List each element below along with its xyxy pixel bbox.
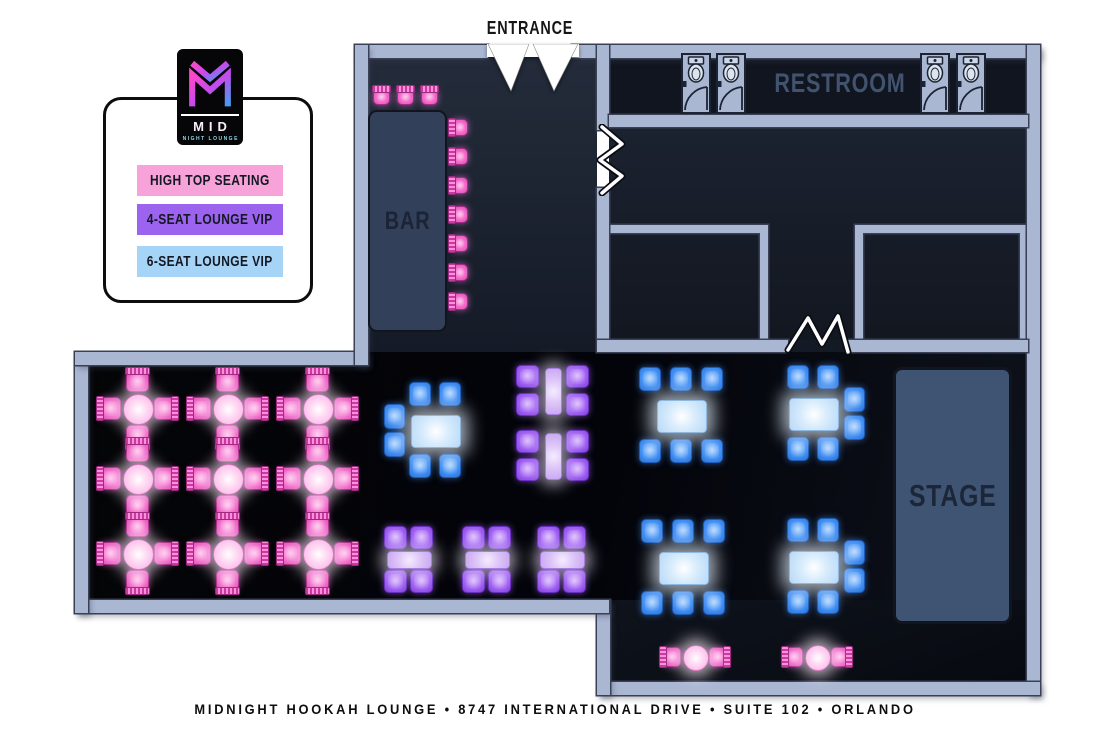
chair xyxy=(100,467,121,490)
entrance-label: ENTRANCE xyxy=(430,18,630,39)
toilet-stall xyxy=(956,53,986,114)
table-top xyxy=(657,400,707,433)
chair xyxy=(488,526,511,549)
bar-label: BAR xyxy=(385,207,431,236)
chair xyxy=(244,397,265,420)
chair xyxy=(409,382,431,406)
legend-item-6-seat-vip: 6-SEAT LOUNGE VIP xyxy=(137,246,283,277)
chair xyxy=(410,526,433,549)
chair xyxy=(306,441,329,462)
chair xyxy=(709,647,727,667)
chair xyxy=(817,590,839,614)
chair xyxy=(154,397,175,420)
wall xyxy=(75,352,88,613)
table-top xyxy=(465,551,510,569)
chair xyxy=(306,371,329,392)
wall xyxy=(609,115,1028,127)
table-top xyxy=(387,551,432,569)
table-top xyxy=(213,464,244,495)
chair xyxy=(154,542,175,565)
chair xyxy=(844,415,865,440)
chair xyxy=(384,432,405,457)
chair xyxy=(306,516,329,537)
back-room-right xyxy=(855,225,1028,348)
chair xyxy=(100,542,121,565)
wall xyxy=(75,352,367,365)
chair xyxy=(537,526,560,549)
table-top xyxy=(123,464,154,495)
chair xyxy=(334,397,355,420)
toilet-icon xyxy=(922,55,948,112)
floor-plan: RESTROOM BAR STAGE ENTRANCE xyxy=(0,0,1110,740)
door-swing-icon xyxy=(782,310,854,354)
chair xyxy=(462,570,485,593)
chair xyxy=(566,458,589,481)
chair xyxy=(787,437,809,461)
chair xyxy=(844,568,865,593)
table-top xyxy=(545,368,562,415)
venue-address: MIDNIGHT HOOKAH LOUNGE • 8747 INTERNATIO… xyxy=(0,701,1110,717)
table-top xyxy=(123,394,154,425)
table-top xyxy=(213,394,244,425)
toilet-icon xyxy=(683,55,709,112)
table-top xyxy=(303,394,334,425)
chair xyxy=(566,393,589,416)
chair xyxy=(844,387,865,412)
chair xyxy=(244,542,265,565)
chair xyxy=(439,382,461,406)
chair xyxy=(566,365,589,388)
chair xyxy=(280,397,301,420)
chair xyxy=(787,590,809,614)
chair xyxy=(409,454,431,478)
door-swing-icon xyxy=(592,124,628,196)
bar-stool xyxy=(452,148,468,165)
chair xyxy=(817,518,839,542)
chair xyxy=(126,441,149,462)
wall xyxy=(848,340,1028,352)
chair xyxy=(563,526,586,549)
table-top xyxy=(545,433,562,480)
bar-area: BAR xyxy=(368,110,447,332)
logo-mid-text: MID xyxy=(188,119,232,134)
toilet-icon xyxy=(718,55,744,112)
wall xyxy=(597,340,788,352)
chair xyxy=(639,367,661,391)
wall xyxy=(355,45,488,58)
table-top xyxy=(805,645,831,671)
chair xyxy=(701,367,723,391)
table-top xyxy=(303,464,334,495)
back-room-left xyxy=(600,225,768,348)
bar-stool xyxy=(373,89,390,105)
chair xyxy=(216,516,239,537)
chair xyxy=(703,591,725,615)
chair xyxy=(563,570,586,593)
chair xyxy=(641,519,663,543)
chair xyxy=(244,467,265,490)
chair xyxy=(334,542,355,565)
chair xyxy=(663,647,681,667)
toilet-icon xyxy=(958,55,984,112)
chair xyxy=(216,570,239,591)
entrance-door-icon xyxy=(487,44,579,96)
wall xyxy=(1027,45,1040,695)
wall xyxy=(355,45,368,365)
bar-stool xyxy=(397,89,414,105)
wall xyxy=(597,682,1040,695)
table-top xyxy=(123,539,154,570)
logo-m-icon xyxy=(180,52,240,112)
chair xyxy=(670,439,692,463)
chair xyxy=(672,519,694,543)
restroom-label: RESTROOM xyxy=(758,68,910,99)
chair xyxy=(787,518,809,542)
bar-stool xyxy=(452,235,468,252)
wall xyxy=(75,600,609,613)
chair xyxy=(216,371,239,392)
chair xyxy=(672,591,694,615)
chair xyxy=(190,467,211,490)
chair xyxy=(537,570,560,593)
table-top xyxy=(540,551,585,569)
chair xyxy=(126,371,149,392)
table-top xyxy=(789,398,839,431)
chair xyxy=(384,526,407,549)
bar-stool xyxy=(452,177,468,194)
chair xyxy=(641,591,663,615)
bar-stool xyxy=(452,206,468,223)
chair xyxy=(566,430,589,453)
chair xyxy=(831,647,849,667)
chair xyxy=(190,397,211,420)
chair xyxy=(639,439,661,463)
chair xyxy=(516,365,539,388)
legend-item-high-top: HIGH TOP SEATING xyxy=(137,165,283,196)
table-top xyxy=(659,552,709,585)
toilet-stall xyxy=(920,53,950,114)
chair xyxy=(488,570,511,593)
table-top xyxy=(789,551,839,584)
chair xyxy=(410,570,433,593)
chair xyxy=(216,441,239,462)
chair xyxy=(334,467,355,490)
chair xyxy=(817,437,839,461)
chair xyxy=(844,540,865,565)
logo-sub-text: NIGHT LOUNGE xyxy=(181,136,239,142)
logo-divider xyxy=(181,114,239,116)
bar-stool xyxy=(421,89,438,105)
chair xyxy=(100,397,121,420)
chair xyxy=(190,542,211,565)
midnight-logo: MID NIGHT LOUNGE xyxy=(177,49,243,145)
wall xyxy=(597,600,610,695)
table-top xyxy=(303,539,334,570)
stage-label: STAGE xyxy=(909,478,997,514)
toilet-stall xyxy=(716,53,746,114)
chair xyxy=(280,467,301,490)
wall xyxy=(597,45,609,130)
chair xyxy=(787,365,809,389)
toilet-stall xyxy=(681,53,711,114)
bar-stool xyxy=(452,293,468,310)
bar-stool xyxy=(452,119,468,136)
chair xyxy=(516,393,539,416)
chair xyxy=(516,430,539,453)
chair xyxy=(703,519,725,543)
table-top xyxy=(213,539,244,570)
chair xyxy=(154,467,175,490)
chair xyxy=(701,439,723,463)
chair xyxy=(785,647,803,667)
table-top xyxy=(683,645,709,671)
chair xyxy=(462,526,485,549)
chair xyxy=(306,570,329,591)
chair xyxy=(384,570,407,593)
chair xyxy=(126,516,149,537)
stage-area: STAGE xyxy=(893,367,1012,624)
table-top xyxy=(411,415,461,448)
chair xyxy=(384,404,405,429)
chair xyxy=(817,365,839,389)
bar-stool xyxy=(452,264,468,281)
chair xyxy=(439,454,461,478)
chair xyxy=(126,570,149,591)
chair xyxy=(516,458,539,481)
chair xyxy=(670,367,692,391)
chair xyxy=(280,542,301,565)
wall xyxy=(597,188,609,352)
legend-item-4-seat-vip: 4-SEAT LOUNGE VIP xyxy=(137,204,283,235)
